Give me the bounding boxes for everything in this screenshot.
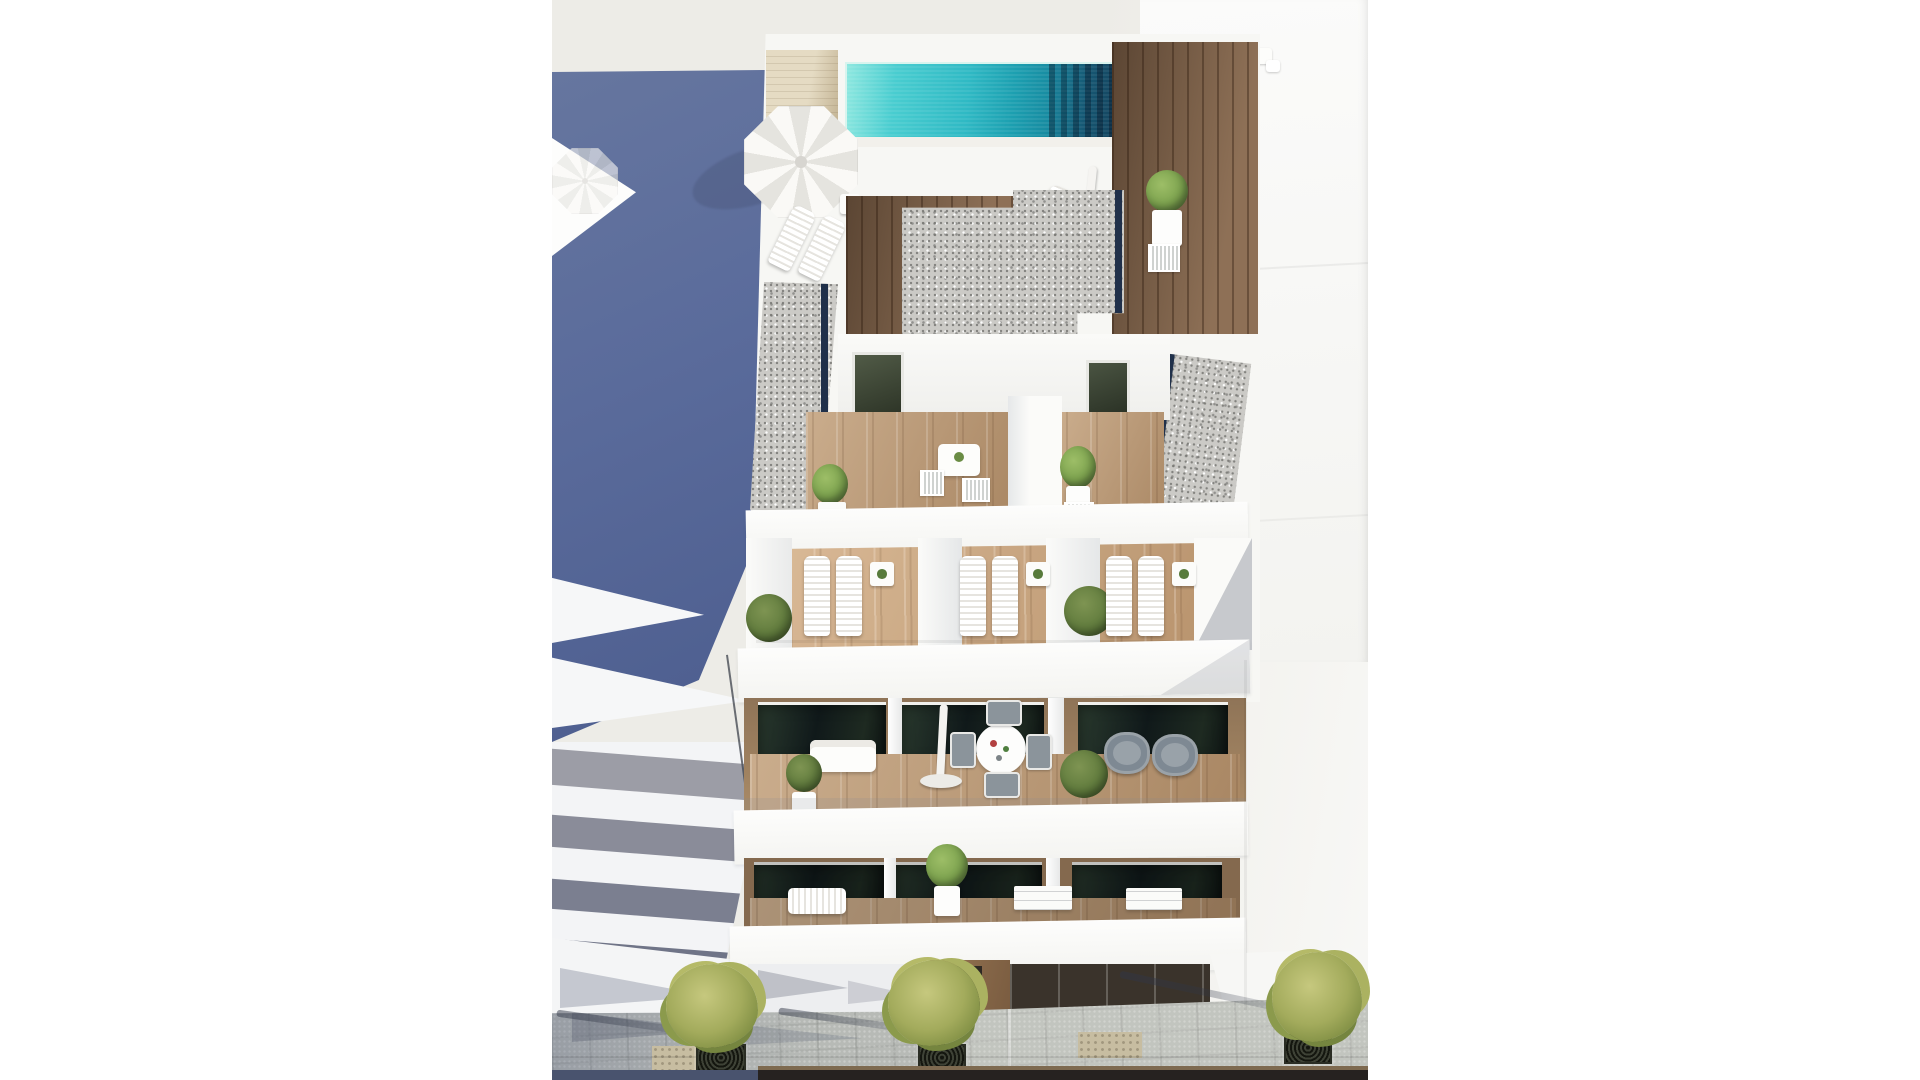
bay-wall [918,538,962,650]
sun-lounger [836,556,862,636]
sun-lounger [1106,556,1132,636]
dining-chair [950,732,976,768]
parapet-corner-shadow [1160,640,1251,696]
parasol-base [920,774,962,788]
terrace-bush [746,594,792,642]
potted-plant [786,754,822,792]
armchair [1152,734,1198,776]
potted-plant [812,464,848,504]
rooftop-pool [845,62,1115,140]
terrace-chair [962,478,990,502]
balcony-table-set [1126,888,1182,910]
wing-chair [1266,60,1280,72]
deck-chair [1148,244,1180,272]
tactile-paving [1078,1032,1142,1058]
armchair [1104,732,1150,774]
round-dining-table [976,724,1026,774]
architectural-render [0,0,1920,1080]
street-asphalt-shadowed [552,1070,758,1080]
balcony-bush [1060,750,1108,798]
planter-pot [1152,210,1182,246]
potted-plant [926,844,968,888]
street-tree [1272,952,1362,1042]
street-tree [666,964,758,1048]
sun-lounger [960,556,986,636]
sun-lounger [992,556,1018,636]
building-edge-shadow [1244,660,1247,1010]
lounger-side-table [870,562,894,586]
plate-icon [1003,746,1009,752]
balcony-lounger [788,888,846,914]
planter-pot [934,886,960,916]
street-asphalt [758,1066,1368,1080]
potted-plant [1146,170,1188,212]
terrace-chair [920,470,944,496]
table-plant-icon [954,452,964,462]
balcony-table-set [1014,886,1072,910]
lounger-side-table [1026,562,1050,586]
glass-edge [1115,190,1122,313]
sun-lounger [1138,556,1164,636]
parapet-band [738,640,1251,703]
parapet-band [734,802,1249,865]
potted-plant [1060,446,1096,488]
plate-icon [990,740,997,747]
dining-chair [986,700,1022,726]
plate-icon [996,755,1002,761]
wall-shadow-icon [758,970,848,1000]
lounger-side-table [1172,562,1196,586]
terrace-table [938,444,980,476]
corner-parasol-icon [552,148,618,214]
wall-shadow-icon [1194,538,1252,650]
pool-coping [845,137,1113,147]
dining-chair [1026,734,1052,770]
sun-lounger [804,556,830,636]
pool-steps-shadow [1049,64,1115,140]
bay-wall [1194,538,1252,650]
dining-chair [984,772,1020,798]
street-tree [888,960,980,1046]
